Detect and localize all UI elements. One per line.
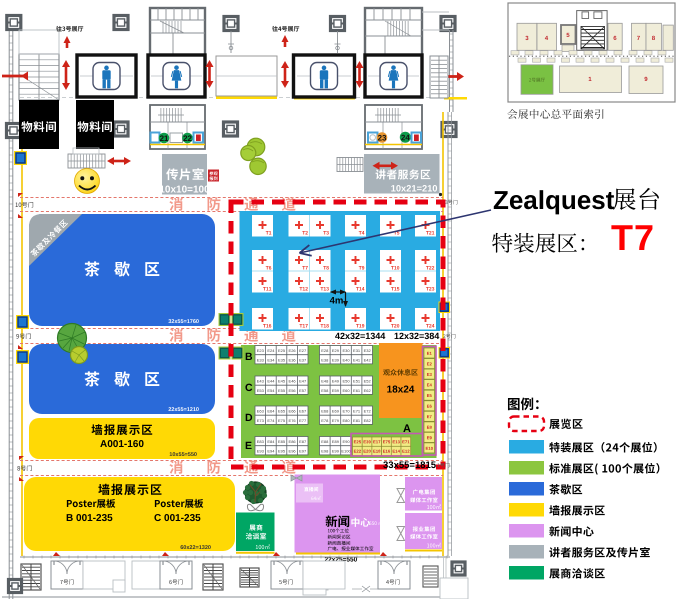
svg-text:E50: E50 xyxy=(342,379,350,384)
svg-text:E94: E94 xyxy=(267,448,275,453)
svg-text:E73: E73 xyxy=(257,418,265,423)
svg-text:E100: E100 xyxy=(341,448,351,453)
svg-text:E46: E46 xyxy=(289,379,297,384)
svg-text:E42: E42 xyxy=(364,357,372,362)
svg-text:E98: E98 xyxy=(321,448,329,453)
svg-text:E39: E39 xyxy=(332,357,340,362)
svg-text:E88: E88 xyxy=(321,439,329,444)
svg-text:E62: E62 xyxy=(364,388,372,393)
svg-text:E96: E96 xyxy=(289,448,297,453)
svg-text:E83: E83 xyxy=(257,439,265,444)
svg-text:E27: E27 xyxy=(299,348,307,353)
svg-text:E26: E26 xyxy=(289,348,297,353)
svg-text:E28: E28 xyxy=(321,348,329,353)
svg-text:E56: E56 xyxy=(289,388,297,393)
svg-text:E65: E65 xyxy=(278,409,286,414)
svg-text:E60: E60 xyxy=(342,388,350,393)
svg-text:E87: E87 xyxy=(299,439,307,444)
svg-text:E51: E51 xyxy=(353,379,361,384)
svg-text:E79: E79 xyxy=(332,418,340,423)
svg-text:E25: E25 xyxy=(278,348,286,353)
svg-text:E57: E57 xyxy=(299,388,307,393)
svg-text:E97: E97 xyxy=(299,448,307,453)
svg-text:E59: E59 xyxy=(332,388,340,393)
svg-text:E34: E34 xyxy=(267,357,275,362)
svg-text:E29: E29 xyxy=(332,348,340,353)
svg-text:E90: E90 xyxy=(342,439,350,444)
svg-text:E71: E71 xyxy=(353,409,361,414)
svg-text:E55: E55 xyxy=(278,388,286,393)
svg-text:E63: E63 xyxy=(257,409,265,414)
svg-text:E66: E66 xyxy=(289,409,297,414)
svg-text:E67: E67 xyxy=(299,409,307,414)
svg-text:E23: E23 xyxy=(257,348,265,353)
svg-text:E54: E54 xyxy=(267,388,275,393)
svg-text:E86: E86 xyxy=(289,439,297,444)
svg-text:E48: E48 xyxy=(321,379,329,384)
svg-text:E45: E45 xyxy=(278,379,286,384)
svg-text:E64: E64 xyxy=(267,409,275,414)
svg-text:E81: E81 xyxy=(353,418,361,423)
svg-text:E78: E78 xyxy=(321,418,329,423)
svg-text:E80: E80 xyxy=(342,418,350,423)
svg-text:E70: E70 xyxy=(342,409,350,414)
svg-text:E93: E93 xyxy=(257,448,265,453)
svg-text:E33: E33 xyxy=(257,357,265,362)
svg-text:E36: E36 xyxy=(289,357,297,362)
svg-text:E43: E43 xyxy=(257,379,265,384)
svg-text:E37: E37 xyxy=(299,357,307,362)
svg-text:E24: E24 xyxy=(267,348,275,353)
svg-text:E99: E99 xyxy=(332,448,340,453)
svg-text:E69: E69 xyxy=(332,409,340,414)
svg-text:E58: E58 xyxy=(321,388,329,393)
svg-text:E76: E76 xyxy=(289,418,297,423)
svg-text:E40: E40 xyxy=(342,357,350,362)
svg-text:E82: E82 xyxy=(364,418,372,423)
svg-text:E53: E53 xyxy=(257,388,265,393)
svg-text:E49: E49 xyxy=(332,379,340,384)
svg-text:E35: E35 xyxy=(278,357,286,362)
svg-text:E31: E31 xyxy=(353,348,361,353)
svg-text:E95: E95 xyxy=(278,448,286,453)
svg-text:E41: E41 xyxy=(353,357,361,362)
svg-text:E75: E75 xyxy=(278,418,286,423)
svg-text:E77: E77 xyxy=(299,418,307,423)
svg-text:E30: E30 xyxy=(342,348,350,353)
svg-text:E85: E85 xyxy=(278,439,286,444)
svg-text:E32: E32 xyxy=(364,348,372,353)
svg-text:E61: E61 xyxy=(353,388,361,393)
svg-text:E52: E52 xyxy=(364,379,372,384)
svg-text:E74: E74 xyxy=(267,418,275,423)
svg-text:E84: E84 xyxy=(267,439,275,444)
svg-text:E44: E44 xyxy=(267,379,275,384)
svg-text:E89: E89 xyxy=(332,439,340,444)
svg-text:E72: E72 xyxy=(364,409,372,414)
svg-text:E68: E68 xyxy=(321,409,329,414)
svg-text:E47: E47 xyxy=(299,379,307,384)
svg-text:E38: E38 xyxy=(321,357,329,362)
